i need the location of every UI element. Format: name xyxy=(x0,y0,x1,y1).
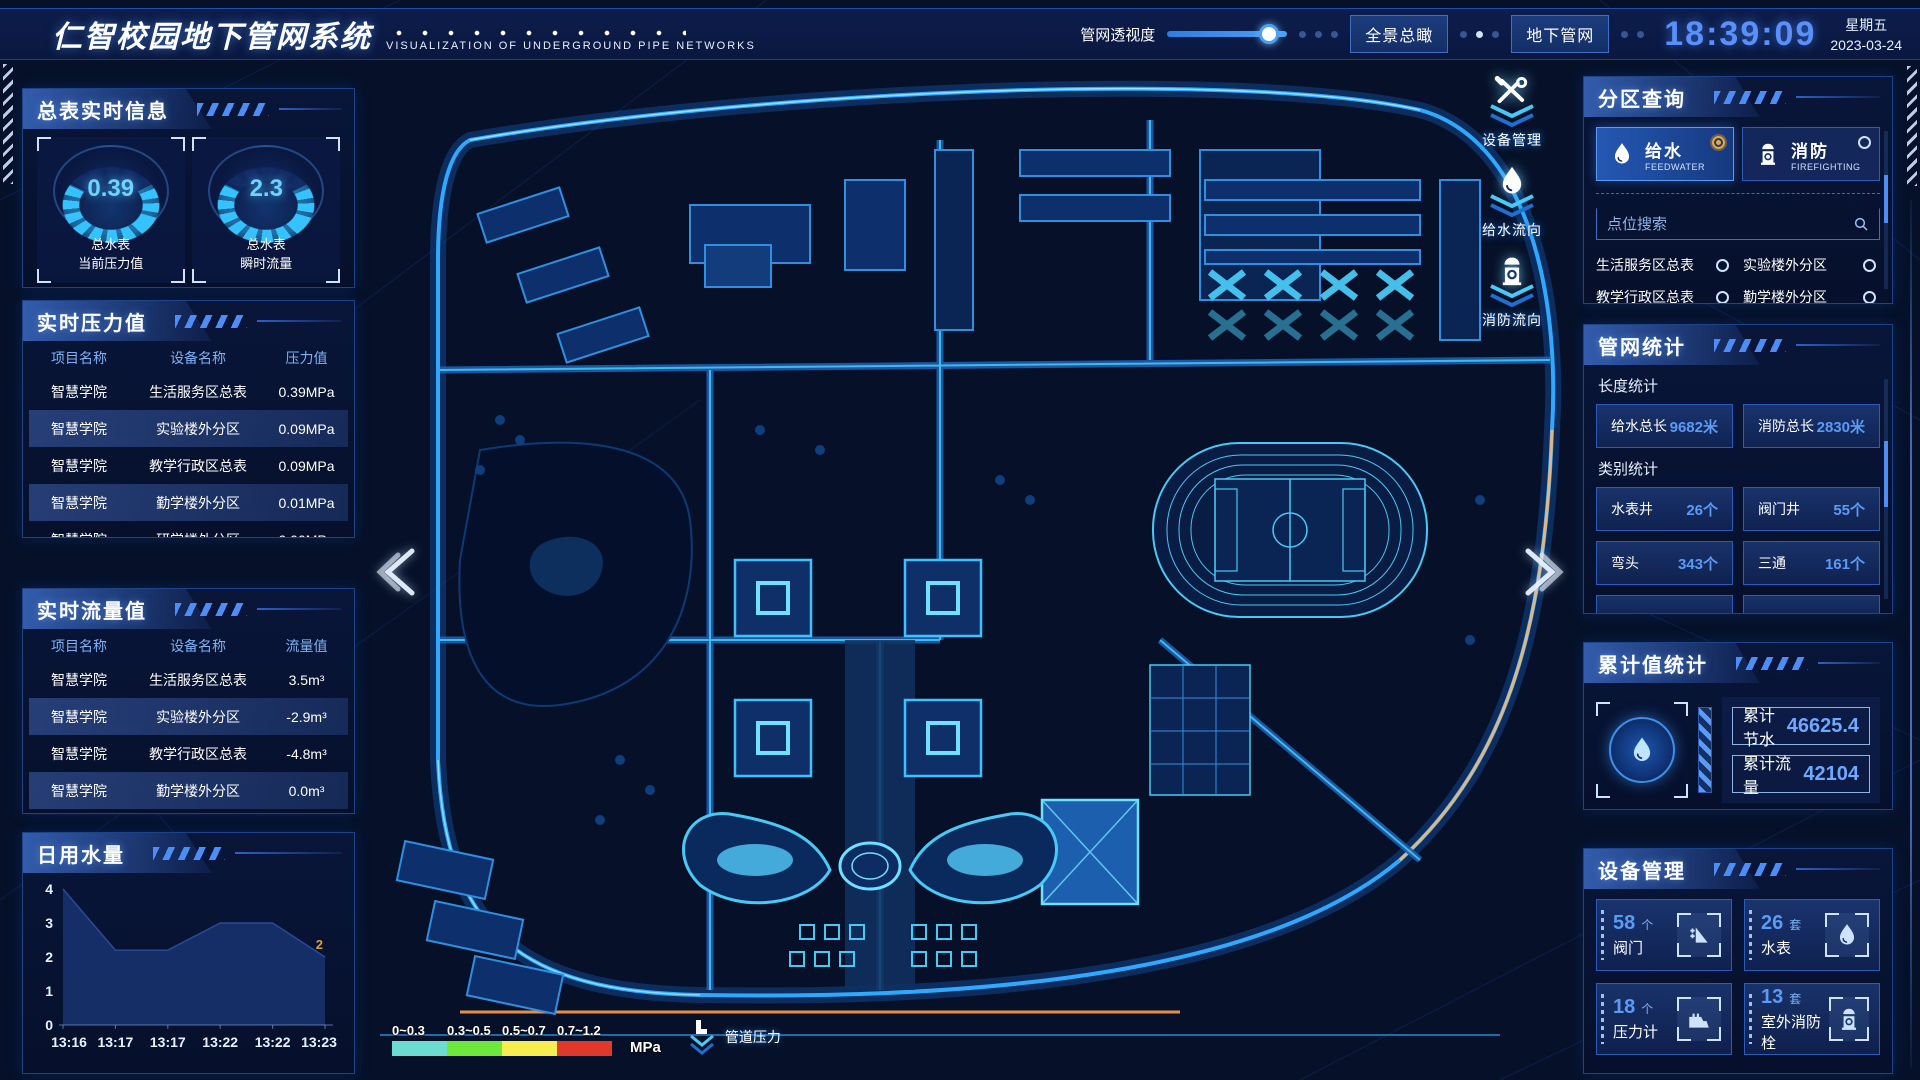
table-row[interactable]: 智慧学院研学楼外分区2.2m³ xyxy=(29,809,348,814)
meter-info-panel: 总表实时信息 0.39 总水表 当前压力值 2.3 总水表 瞬时流量 xyxy=(22,88,355,288)
valve-icon xyxy=(1677,913,1721,957)
legend-range-label: 0.5~0.7 xyxy=(502,1023,557,1038)
stat-box: 给水总长9682米 xyxy=(1596,404,1733,448)
map-tool-water-drop[interactable]: 给水流向 xyxy=(1482,164,1542,240)
water-drop-icon xyxy=(1492,164,1532,198)
table-row[interactable]: 智慧学院勤学楼外分区0.0m³ xyxy=(29,772,348,809)
dot-separator xyxy=(1621,31,1644,38)
legend-range-label: 0~0.3 xyxy=(392,1023,447,1038)
y-tick-label: 2 xyxy=(45,949,53,965)
device-management-panel: 设备管理 58个阀门26套水表18个压力计13套室外消防栓 xyxy=(1583,848,1893,1074)
pipe-opacity-label: 管网透视度 xyxy=(1080,24,1155,45)
legend-range-label: 0.3~0.5 xyxy=(447,1023,502,1038)
zone-item[interactable]: 勤学楼外分区 xyxy=(1743,282,1880,304)
pressure-table-panel: 实时压力值 项目名称设备名称压力值智慧学院生活服务区总表0.39MPa智慧学院实… xyxy=(22,300,355,538)
water-meter-icon xyxy=(1825,913,1869,957)
x-tick-label: 13:17 xyxy=(97,1034,133,1050)
map-tool-label: 设备管理 xyxy=(1482,130,1542,150)
clock: 18:39:09 星期五 2023-03-24 xyxy=(1664,15,1902,54)
overview-button[interactable]: 全景总瞰 xyxy=(1350,15,1448,53)
lake-island xyxy=(530,537,603,596)
search-box[interactable] xyxy=(1596,208,1880,240)
x-tick-label: 13:23 xyxy=(301,1034,337,1050)
x-tick-label: 13:22 xyxy=(255,1034,291,1050)
line-decoration xyxy=(257,608,342,610)
flow-table: 项目名称设备名称流量值智慧学院生活服务区总表3.5m³智慧学院实验楼外分区-2.… xyxy=(23,629,354,814)
slash-decoration xyxy=(1736,657,1808,670)
pressure-legend: 0~0.30.3~0.50.5~0.70.7~1.2 MPa 管道压力 xyxy=(392,1018,781,1056)
wrench-icon xyxy=(1492,74,1532,108)
app-subtitle: VISUALIZATION OF UNDERGROUND PIPE NETWOR… xyxy=(386,40,756,52)
hydrant-icon xyxy=(1755,141,1781,167)
line-decoration xyxy=(279,108,342,110)
pipe-pressure-label: 管道压力 xyxy=(725,1027,781,1047)
gauge-value: 2.3 xyxy=(192,175,340,203)
hydrant-icon xyxy=(1829,997,1869,1041)
table-header: 项目名称设备名称压力值 xyxy=(29,343,348,373)
search-icon[interactable] xyxy=(1853,216,1869,232)
clipped-stats-row xyxy=(1584,595,1892,614)
table-row[interactable]: 智慧学院生活服务区总表0.39MPa xyxy=(29,373,348,410)
panel-title: 分区查询 xyxy=(1598,83,1686,112)
panel-title: 累计值统计 xyxy=(1598,649,1708,678)
device-card[interactable]: 58个阀门 xyxy=(1596,899,1732,971)
line-decoration xyxy=(1818,662,1880,664)
zone-list: 生活服务区总表实验楼外分区教学行政区总表勤学楼外分区研学楼外分区宿舍区泵房 xyxy=(1584,248,1892,304)
pressure-gauge-card: 0.39 总水表 当前压力值 xyxy=(37,137,185,283)
dot-separator xyxy=(1299,31,1338,38)
hydrant-icon xyxy=(1492,254,1532,288)
clock-date: 2023-03-24 xyxy=(1830,37,1902,53)
water-drop-icon xyxy=(1627,735,1657,765)
line-decoration xyxy=(257,320,342,322)
device-grid: 58个阀门26套水表18个压力计13套室外消防栓 xyxy=(1584,889,1892,1055)
y-tick-label: 1 xyxy=(45,983,53,999)
table-row[interactable]: 智慧学院教学行政区总表-4.8m³ xyxy=(29,735,348,772)
device-card[interactable]: 26套水表 xyxy=(1744,899,1880,971)
zone-item[interactable]: 生活服务区总表 xyxy=(1596,250,1733,280)
map-tool-stack: 设备管理给水流向消防流向 xyxy=(1462,74,1562,330)
slash-decoration xyxy=(153,847,225,860)
stat-box: 阀门井55个 xyxy=(1743,487,1880,531)
promenade xyxy=(845,640,915,990)
slider-thumb[interactable] xyxy=(1259,24,1279,44)
table-row[interactable]: 智慧学院教学行政区总表0.09MPa xyxy=(29,447,348,484)
panel-title: 管网统计 xyxy=(1598,331,1686,360)
map-next-arrow[interactable] xyxy=(1522,545,1568,599)
panel-title: 总表实时信息 xyxy=(37,95,169,124)
map-prev-arrow[interactable] xyxy=(372,545,418,599)
clock-time: 18:39:09 xyxy=(1664,15,1816,54)
table-row[interactable]: 智慧学院生活服务区总表3.5m³ xyxy=(29,661,348,698)
stat-box: 弯头343个 xyxy=(1596,541,1733,585)
pipe-pressure-icon xyxy=(687,1018,717,1056)
radio-unselected[interactable] xyxy=(1716,259,1729,272)
table-row[interactable]: 智慧学院实验楼外分区0.09MPa xyxy=(29,410,348,447)
y-tick-label: 4 xyxy=(45,881,53,897)
totals-panel: 累计值统计 累计节水 46625.4 累计流量 42104 xyxy=(1583,642,1893,810)
area-series xyxy=(63,889,325,1025)
gauge-value: 0.39 xyxy=(37,175,185,203)
map-tool-label: 消防流向 xyxy=(1482,310,1542,330)
slash-decoration xyxy=(1714,91,1786,104)
stat-box: 水表井26个 xyxy=(1596,487,1733,531)
legend-range-label: 0.7~1.2 xyxy=(557,1023,612,1038)
total-saving-row: 累计节水 46625.4 xyxy=(1732,707,1870,745)
zone-item[interactable]: 实验楼外分区 xyxy=(1743,250,1880,280)
stadium xyxy=(1153,443,1427,617)
map-tool-hydrant[interactable]: 消防流向 xyxy=(1482,254,1542,330)
hatch-divider xyxy=(1698,707,1712,793)
edge-decoration xyxy=(1910,200,1912,1068)
table-row[interactable]: 智慧学院实验楼外分区-2.9m³ xyxy=(29,698,348,735)
pressure-table: 项目名称设备名称压力值智慧学院生活服务区总表0.39MPa智慧学院实验楼外分区0… xyxy=(23,341,354,538)
line-decoration xyxy=(1796,344,1880,346)
underground-button[interactable]: 地下管网 xyxy=(1511,15,1609,53)
radio-selected[interactable] xyxy=(1712,136,1725,149)
map-tool-label: 给水流向 xyxy=(1482,220,1542,240)
legend-color-bar xyxy=(392,1041,612,1056)
flow-gauge-card: 2.3 总水表 瞬时流量 xyxy=(192,137,340,283)
scrollbar[interactable] xyxy=(1884,131,1888,289)
table-row[interactable]: 智慧学院勤学楼外分区0.01MPa xyxy=(29,484,348,521)
zone-item[interactable]: 教学行政区总表 xyxy=(1596,282,1733,304)
radio-unselected[interactable] xyxy=(1863,291,1876,304)
stat-box: 三通161个 xyxy=(1743,541,1880,585)
series-end-label: 2 xyxy=(316,937,323,952)
y-tick-label: 3 xyxy=(45,915,53,931)
legend-unit: MPa xyxy=(630,1039,661,1056)
legend-color-segment xyxy=(502,1041,557,1056)
scrollbar[interactable] xyxy=(1884,379,1888,599)
line-decoration xyxy=(1796,868,1880,870)
clock-weekday: 星期五 xyxy=(1845,15,1887,35)
panel-title: 日用水量 xyxy=(37,839,125,868)
x-tick-label: 13:17 xyxy=(150,1034,186,1050)
zone-query-panel: 分区查询 给水FEEDWATER 消防FIREFIGHTING 生活服务区总表实… xyxy=(1583,76,1893,304)
radio-unselected[interactable] xyxy=(1858,136,1871,149)
panel-title: 实时流量值 xyxy=(37,595,147,624)
y-tick-label: 0 xyxy=(45,1017,53,1033)
firefighting-toggle[interactable]: 消防FIREFIGHTING xyxy=(1742,127,1880,181)
device-card[interactable]: 18个压力计 xyxy=(1596,983,1732,1055)
flow-table-panel: 实时流量值 项目名称设备名称流量值智慧学院生活服务区总表3.5m³智慧学院实验楼… xyxy=(22,588,355,814)
water-drop-icon xyxy=(1609,141,1635,167)
x-tick-label: 13:22 xyxy=(202,1034,238,1050)
daily-water-panel: 日用水量 0123413:1613:1713:1713:2213:2213:23… xyxy=(22,832,355,1074)
sports-courts xyxy=(1150,665,1250,795)
top-header: 仁智校园地下管网系统 VISUALIZATION OF UNDERGROUND … xyxy=(0,8,1920,60)
dot-separator xyxy=(1460,31,1499,38)
slash-decoration xyxy=(175,603,247,616)
decorative-dots xyxy=(386,30,686,36)
stat-box: 消防总长2830米 xyxy=(1743,404,1880,448)
gauge-label: 总水表 当前压力值 xyxy=(37,235,185,273)
length-stats-label: 长度统计 xyxy=(1584,365,1892,404)
dashed-divider xyxy=(1596,193,1880,194)
search-input[interactable] xyxy=(1607,216,1845,233)
radio-unselected[interactable] xyxy=(1716,291,1729,304)
feedwater-toggle[interactable]: 给水FEEDWATER xyxy=(1596,127,1734,181)
category-stats-grid: 水表井26个阀门井55个弯头343个三通161个 xyxy=(1584,487,1892,585)
panel-title: 实时压力值 xyxy=(37,307,147,336)
radio-unselected[interactable] xyxy=(1863,259,1876,272)
legend-range-labels: 0~0.30.3~0.50.5~0.70.7~1.2 xyxy=(392,1023,612,1038)
edge-decoration xyxy=(3,64,13,184)
water-saving-icon-frame xyxy=(1596,702,1688,798)
edge-decoration xyxy=(1907,66,1917,186)
table-header: 项目名称设备名称流量值 xyxy=(29,631,348,661)
table-row[interactable]: 智慧学院研学楼外分区0.00MPa xyxy=(29,521,348,538)
pressure-gauge-icon xyxy=(1677,997,1721,1041)
line-decoration xyxy=(1796,96,1880,98)
slash-decoration xyxy=(1714,339,1786,352)
length-stats-grid: 给水总长9682米消防总长2830米 xyxy=(1584,404,1892,448)
slash-decoration xyxy=(1714,863,1786,876)
legend-color-segment xyxy=(447,1041,502,1056)
slash-decoration xyxy=(175,315,247,328)
legend-color-segment xyxy=(392,1041,447,1056)
slash-decoration xyxy=(197,103,269,116)
network-stats-panel: 管网统计 长度统计 给水总长9682米消防总长2830米 类别统计 水表井26个… xyxy=(1583,324,1893,614)
total-flow-row: 累计流量 42104 xyxy=(1732,755,1870,793)
legend-color-segment xyxy=(557,1041,612,1056)
device-card[interactable]: 13套室外消防栓 xyxy=(1744,983,1880,1055)
daily-water-chart: 0123413:1613:1713:1713:2213:2213:232 xyxy=(33,875,344,1067)
line-decoration xyxy=(235,852,342,854)
map-tool-wrench[interactable]: 设备管理 xyxy=(1482,74,1542,150)
x-tick-label: 13:16 xyxy=(51,1034,87,1050)
app-title: 仁智校园地下管网系统 xyxy=(52,12,372,56)
gauge-label: 总水表 瞬时流量 xyxy=(192,235,340,273)
panel-title: 设备管理 xyxy=(1598,855,1686,884)
pipe-opacity-slider[interactable] xyxy=(1167,31,1287,37)
category-stats-label: 类别统计 xyxy=(1584,448,1892,487)
